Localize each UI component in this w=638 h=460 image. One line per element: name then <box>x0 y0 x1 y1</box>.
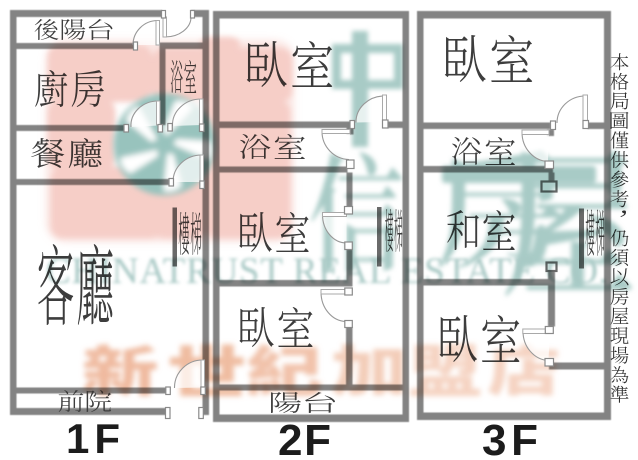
svg-text:2F: 2F <box>278 416 331 460</box>
svg-text:CHINATRUST REAL ESTATE CO.: CHINATRUST REAL ESTATE CO. <box>46 251 608 292</box>
